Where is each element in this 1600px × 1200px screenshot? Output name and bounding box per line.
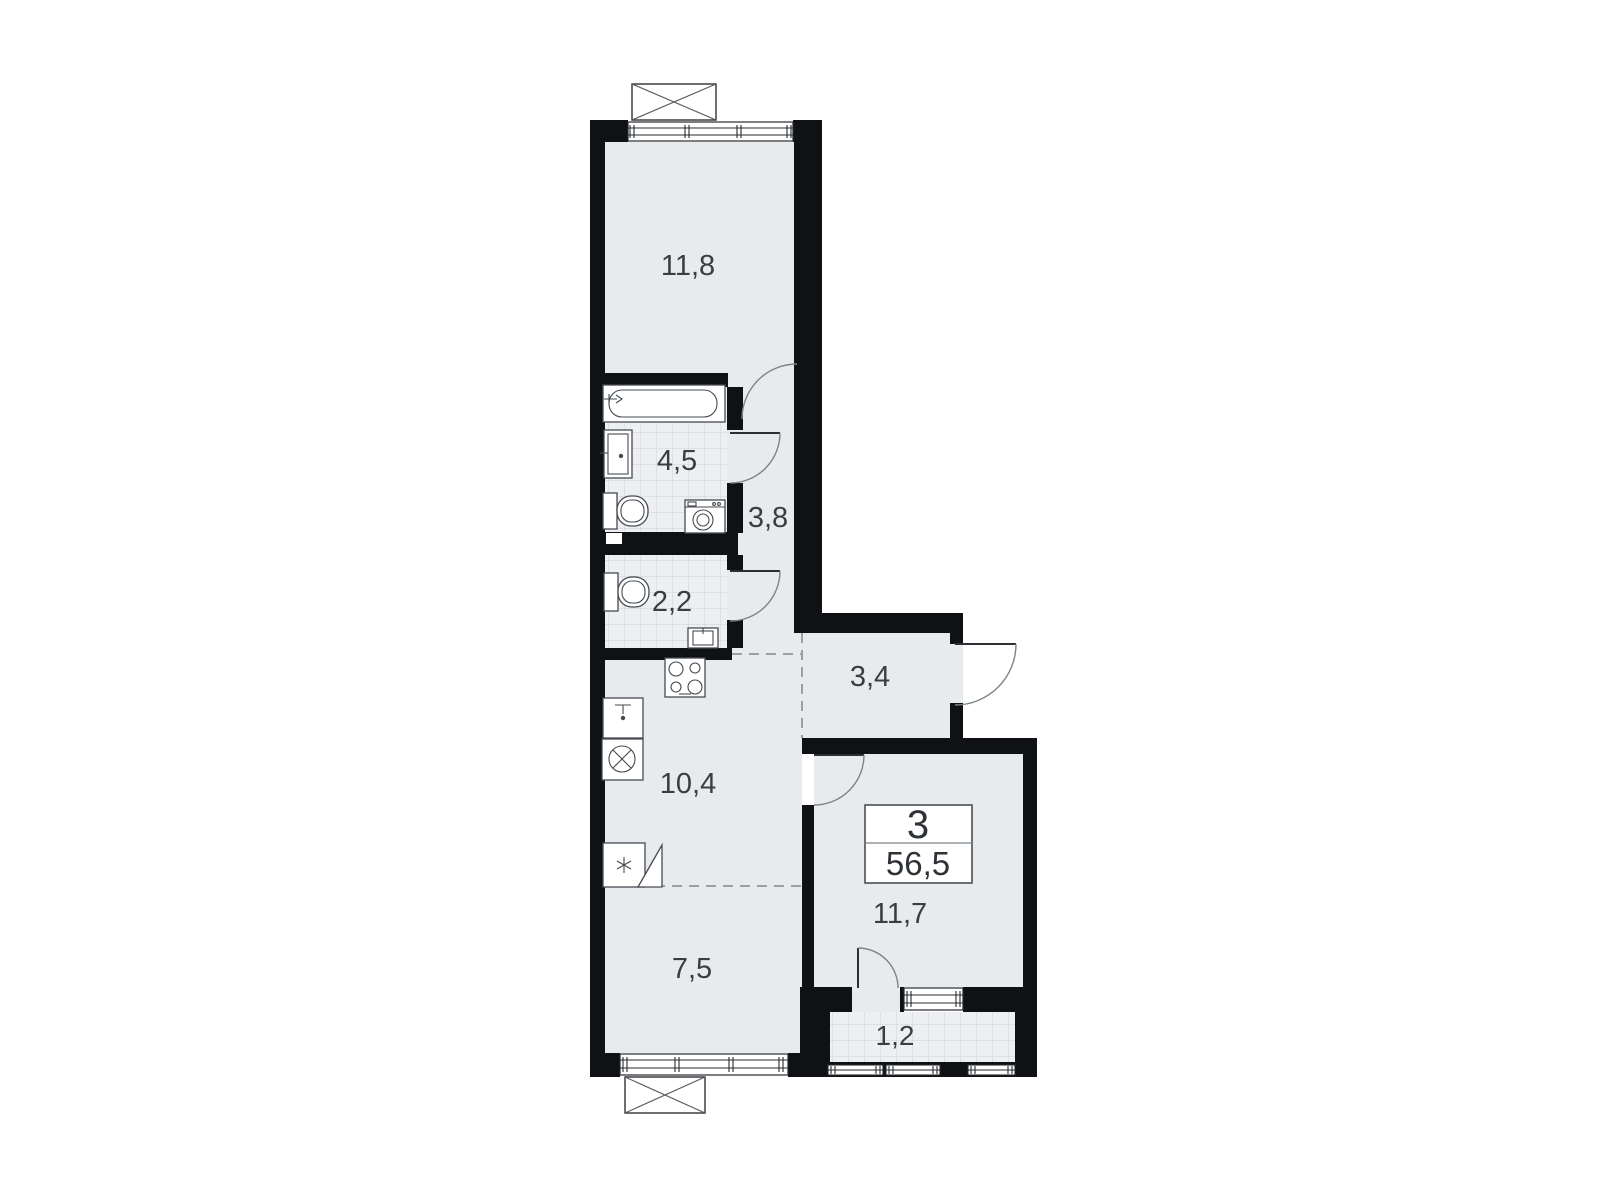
floor-plan-page: 11,8 4,5 3,8 2,2 3,4 10,4 7,5 11,7 1,2 3… xyxy=(0,0,1600,1200)
loggia-box-top xyxy=(632,84,716,120)
apartment-info-box: 3 56,5 xyxy=(865,803,972,883)
wall-bedroom-bottom-right xyxy=(963,987,1023,1012)
label-bedroom-area: 11,7 xyxy=(873,898,927,930)
label-kitchen-area: 10,4 xyxy=(660,768,716,800)
label-hallway-area: 3,8 xyxy=(748,502,788,534)
wall-bathroom-right-b xyxy=(727,483,743,533)
washing-machine-icon-kitchen xyxy=(602,739,643,780)
wall-bottom-right xyxy=(788,1053,814,1077)
label-entry-area: 3,4 xyxy=(850,661,890,693)
balcony-glazing xyxy=(828,1065,1015,1075)
wall-wc-bottom xyxy=(590,648,732,660)
label-room-small-area: 7,5 xyxy=(672,953,712,985)
floor-balcony-doorway xyxy=(852,987,903,1012)
window-bedroom-balcony xyxy=(904,988,963,1010)
label-living-area: 11,8 xyxy=(661,250,715,282)
door-entrance xyxy=(955,644,1016,705)
wall-left xyxy=(590,120,605,1077)
window-top xyxy=(628,122,793,141)
kitchen-sink-icon xyxy=(603,698,643,738)
loggia-box-bottom xyxy=(625,1077,705,1113)
info-total-area: 56,5 xyxy=(886,845,950,882)
small-sink-icon xyxy=(688,628,718,648)
wall-shaft-notch xyxy=(606,533,622,544)
wall-entry-top xyxy=(794,613,963,633)
info-rooms-count: 3 xyxy=(907,803,929,847)
wall-entry-jamb-bottom xyxy=(950,703,963,738)
label-bathroom-area: 4,5 xyxy=(657,445,697,477)
wall-bedroom-left xyxy=(802,805,814,1012)
wall-entry-jamb-top xyxy=(950,633,963,644)
toilet-icon-wc xyxy=(604,573,649,611)
stove-icon xyxy=(665,658,705,697)
wall-bedroom-right xyxy=(1023,754,1037,1012)
wall-wc-right-b xyxy=(727,620,743,648)
wall-bedroom-top xyxy=(802,738,1037,754)
bathtub-icon xyxy=(603,385,725,422)
label-wc-area: 2,2 xyxy=(652,586,692,618)
wall-wc-right-a xyxy=(727,555,743,570)
door-hinge-block xyxy=(728,414,743,426)
washbasin-icon xyxy=(600,430,632,478)
washing-machine-icon xyxy=(685,500,725,533)
wall-bottom-left xyxy=(590,1053,620,1077)
wall-right-upper xyxy=(794,120,822,613)
balcony-tiles xyxy=(830,1012,1015,1063)
label-balcony-area: 1,2 xyxy=(876,1020,915,1051)
toilet-icon xyxy=(603,493,648,529)
floor-plan-svg: 11,8 4,5 3,8 2,2 3,4 10,4 7,5 11,7 1,2 3… xyxy=(0,0,1600,1200)
window-bottom xyxy=(620,1054,788,1075)
wall-top-left xyxy=(590,120,628,142)
